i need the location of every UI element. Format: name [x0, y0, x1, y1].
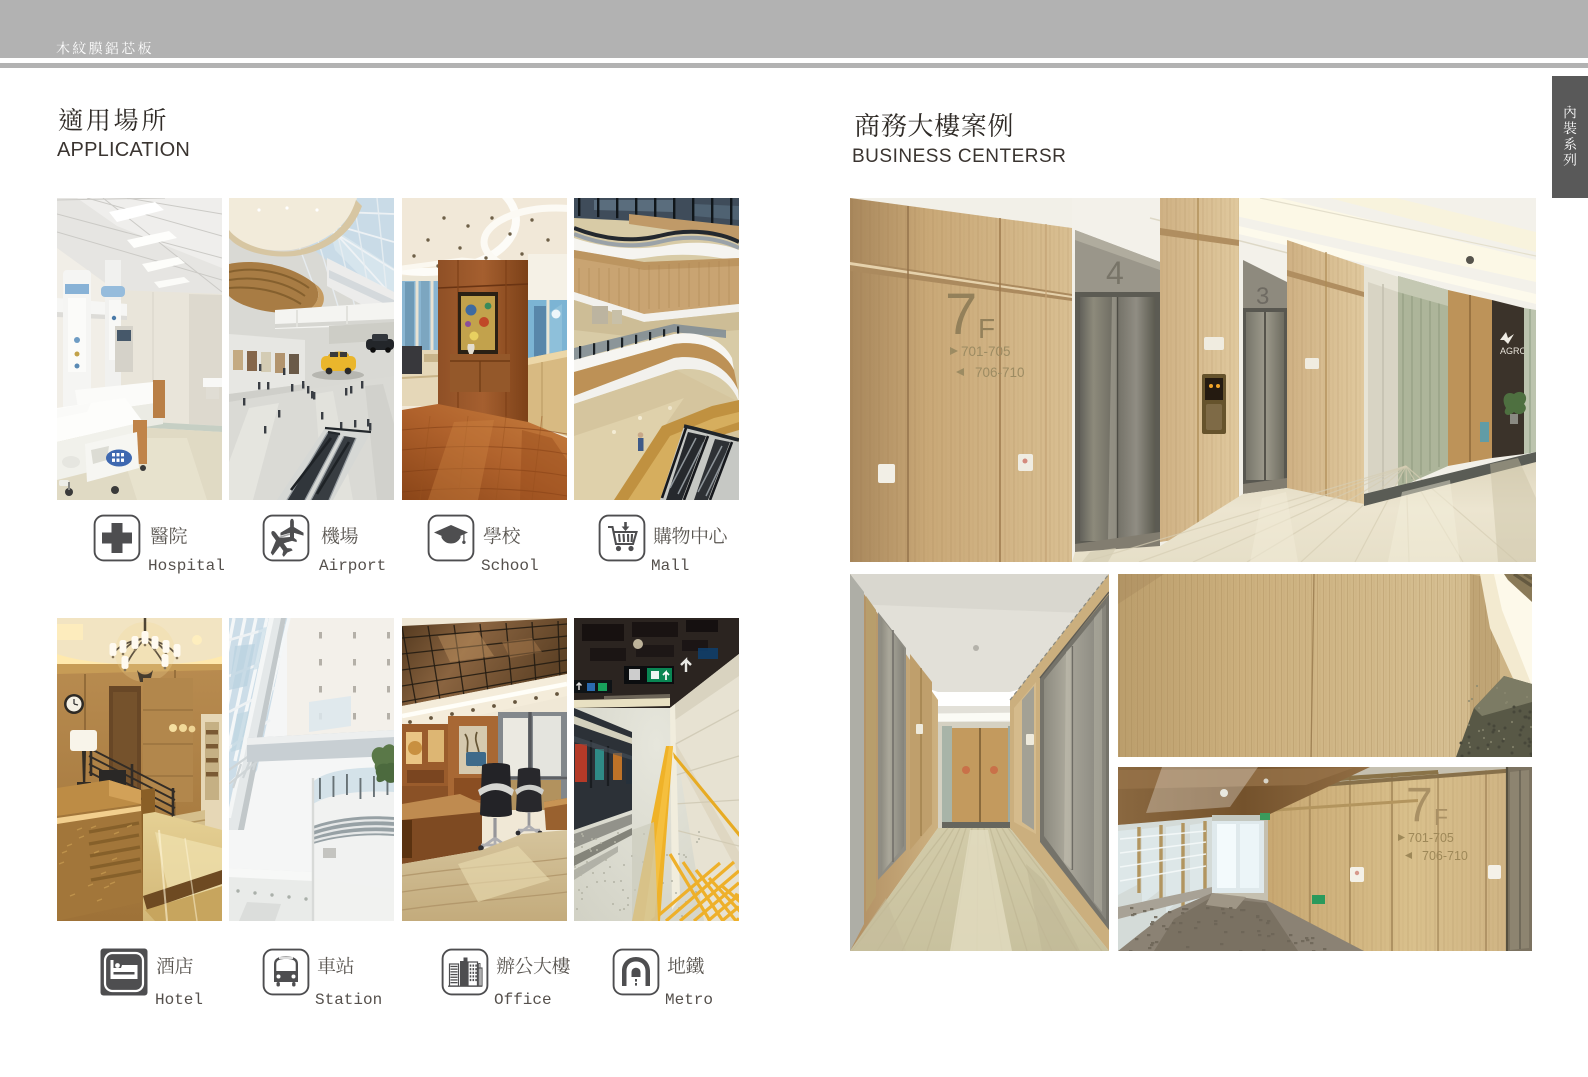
svg-text:3: 3 [1256, 283, 1269, 310]
svg-text:701-705: 701-705 [961, 344, 1011, 359]
svg-text:706-710: 706-710 [1422, 849, 1468, 863]
svg-text:F: F [978, 313, 995, 344]
svg-text:AGRO: AGRO [1500, 346, 1527, 356]
svg-text:F: F [1434, 804, 1448, 830]
svg-text:706-710: 706-710 [975, 365, 1025, 380]
svg-text:7: 7 [945, 282, 977, 347]
svg-text:701-705: 701-705 [1408, 831, 1454, 845]
svg-text:4: 4 [1106, 255, 1124, 291]
svg-text:7: 7 [1406, 779, 1433, 832]
